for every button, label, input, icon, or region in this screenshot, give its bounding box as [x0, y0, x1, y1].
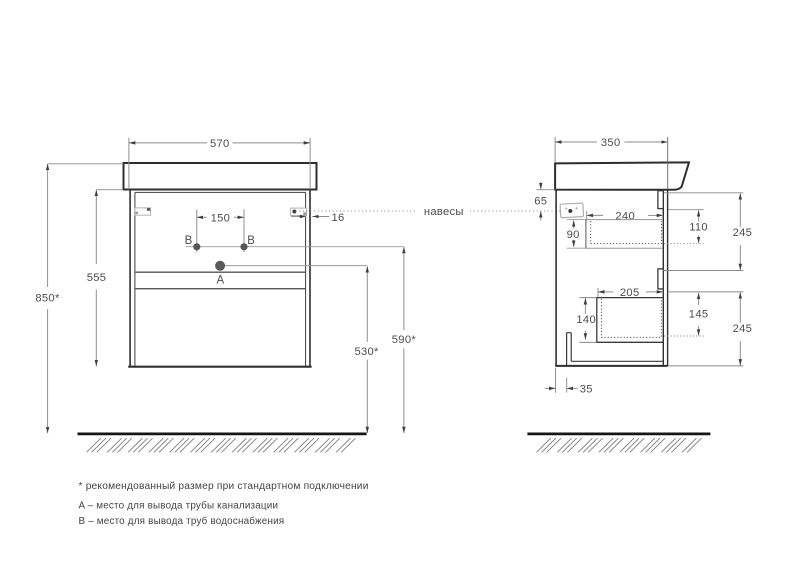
svg-text:A – место для вывода трубы кан: A – место для вывода трубы канализации — [79, 500, 279, 511]
svg-text:245: 245 — [733, 323, 753, 335]
svg-text:B – место для вывода труб водо: B – место для вывода труб водоснабжения — [79, 516, 285, 527]
svg-text:* рекомендованный размер при с: * рекомендованный размер при стандартном… — [79, 481, 369, 492]
svg-text:145: 145 — [689, 309, 709, 321]
svg-text:110: 110 — [689, 221, 708, 233]
svg-text:140: 140 — [576, 314, 596, 326]
svg-text:245: 245 — [733, 227, 753, 239]
svg-text:35: 35 — [580, 384, 593, 396]
svg-text:530*: 530* — [354, 346, 379, 358]
svg-text:A: A — [217, 275, 225, 287]
svg-text:16: 16 — [331, 212, 344, 224]
svg-text:350: 350 — [601, 137, 621, 149]
svg-text:B: B — [247, 235, 255, 247]
svg-text:65: 65 — [534, 196, 547, 208]
svg-text:150: 150 — [211, 213, 231, 225]
svg-text:90: 90 — [567, 229, 580, 241]
svg-text:590*: 590* — [392, 334, 417, 346]
svg-text:850*: 850* — [35, 293, 60, 305]
svg-text:240: 240 — [615, 211, 635, 223]
svg-text:570: 570 — [210, 138, 230, 150]
svg-text:B: B — [185, 235, 193, 247]
svg-text:навесы: навесы — [424, 206, 464, 218]
svg-text:555: 555 — [87, 272, 107, 284]
